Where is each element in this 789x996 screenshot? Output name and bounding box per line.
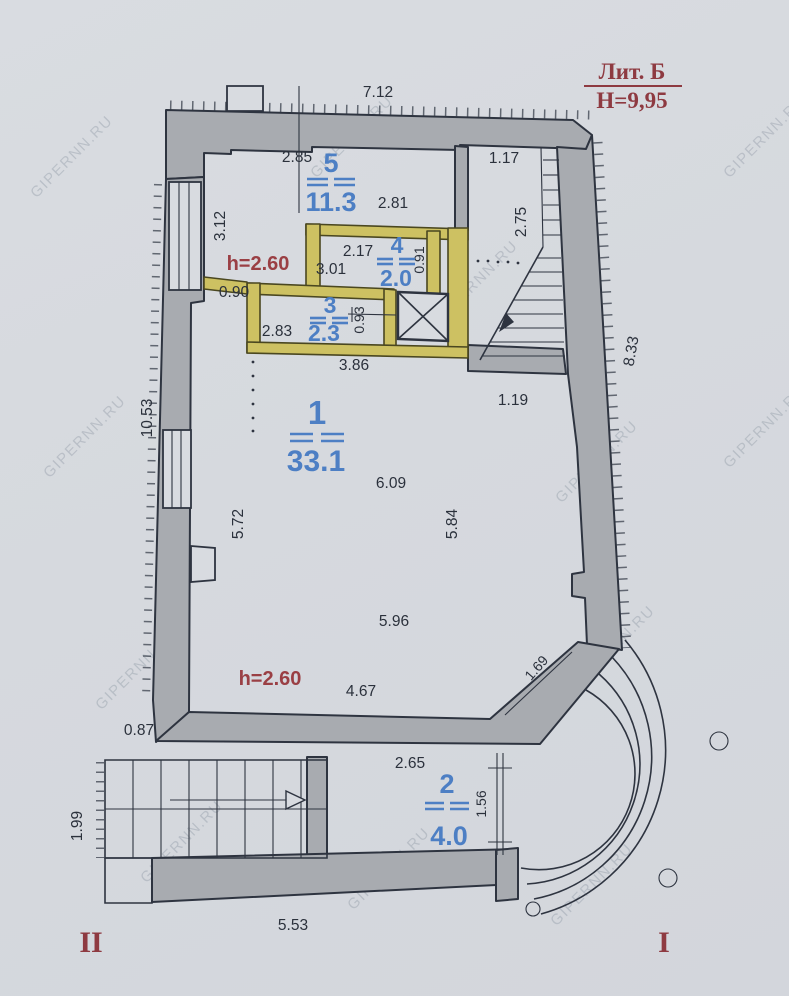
room-number: 3 — [324, 292, 337, 318]
watermark: GIPERNN.RU — [720, 382, 789, 471]
dim-label: 2.81 — [378, 195, 408, 212]
dim-label: 1.19 — [498, 392, 528, 409]
dim-label: 4.67 — [346, 683, 376, 700]
dim-label: 3.01 — [316, 261, 346, 278]
stair-arrow-head — [286, 791, 305, 809]
watermark: GIPERNN.RU — [40, 392, 129, 481]
room-label-2: 2 4.0 — [425, 769, 469, 851]
wall-right — [557, 135, 622, 650]
wall-bottom-divider — [307, 757, 327, 858]
dim-label: 2.83 — [262, 323, 292, 340]
dim-label: 0.93 — [351, 306, 367, 333]
wall-hall-room5-divider — [455, 146, 468, 230]
room-number: 1 — [308, 394, 326, 431]
dim-label: 1.99 — [69, 811, 86, 841]
dim-label: 5.72 — [230, 509, 247, 539]
dim-label: 2.17 — [343, 243, 373, 260]
partition-room4-left — [306, 224, 320, 292]
window-upper-left — [169, 182, 201, 290]
ceiling-height-upper: h=2.60 — [227, 253, 290, 275]
room-area: 2.3 — [308, 320, 340, 346]
partition-hall-left — [448, 228, 468, 353]
partition-room3-top — [247, 283, 394, 300]
dim-label: 0.90 — [219, 284, 250, 301]
litera-label: Лит. Б — [599, 59, 666, 84]
window-lower-left — [163, 430, 191, 508]
room-number: 5 — [323, 148, 338, 178]
porch-column — [526, 902, 540, 916]
porch-slab — [152, 849, 517, 902]
room-area: 2.0 — [380, 265, 412, 291]
watermarks: GIPERNN.RU GIPERNN.RU GIPERNN.RU GIPERNN… — [27, 92, 789, 929]
watermark: GIPERNN.RU — [720, 92, 789, 181]
room-area: 33.1 — [287, 445, 345, 478]
title-block: Лит. Б Н=9,95 — [584, 59, 682, 113]
room-number: 4 — [391, 232, 404, 258]
stair-flight-edge — [541, 147, 543, 247]
wall-niche — [191, 546, 215, 582]
room-label-3: 3 2.3 — [308, 292, 348, 346]
porch-slab-end-block — [496, 848, 518, 901]
wall-bottom — [156, 642, 619, 744]
ceiling-height-lower: h=2.60 — [239, 668, 302, 690]
porch-column — [710, 732, 728, 750]
dim-label: 2.65 — [395, 755, 425, 772]
room-area: 11.3 — [305, 187, 356, 217]
door-dotted-line — [252, 361, 255, 433]
room-label-1: 1 33.1 — [287, 394, 345, 478]
chimney-block — [227, 86, 263, 111]
dim-label: 8.33 — [621, 335, 643, 368]
partition-room3-right — [384, 289, 396, 352]
dim-label: 3.86 — [339, 357, 369, 374]
partition-room4-right — [427, 231, 440, 294]
dim-label: 5.84 — [444, 509, 461, 540]
dim-label: 2.85 — [282, 149, 312, 166]
room-number: 2 — [439, 769, 454, 799]
room-area: 4.0 — [430, 821, 468, 851]
wall-under-stair-hall — [468, 345, 566, 374]
wall-top — [166, 110, 592, 179]
partition-room4-top — [306, 224, 468, 240]
entrance-marks: II I — [79, 926, 670, 959]
dim-label: 7.12 — [363, 84, 393, 101]
watermark: GIPERNN.RU — [27, 112, 116, 201]
room-label-4: 4 2.0 — [377, 232, 415, 291]
building-height-label: Н=9,95 — [596, 88, 667, 113]
dim-label: 5.96 — [379, 613, 409, 630]
porch-column — [659, 869, 677, 887]
floorplan-page: GIPERNN.RU GIPERNN.RU GIPERNN.RU GIPERNN… — [0, 0, 789, 996]
partition-room3-bottom — [247, 342, 468, 358]
dim-label: 3.12 — [212, 211, 229, 241]
dim-label: 6.09 — [376, 475, 406, 492]
dim-label: 0.87 — [124, 722, 154, 739]
dim-label: 10.53 — [139, 399, 156, 438]
dim-label: 5.53 — [278, 917, 308, 934]
dim-label: 1.17 — [489, 150, 519, 167]
entrance-mark-left: II — [79, 926, 102, 959]
dim-label: 1.56 — [473, 790, 489, 817]
room2-dim-line — [488, 753, 512, 855]
room-label-5: 5 11.3 — [305, 148, 356, 217]
entrance-mark-right: I — [658, 926, 670, 959]
dim-label: 2.75 — [513, 207, 530, 237]
